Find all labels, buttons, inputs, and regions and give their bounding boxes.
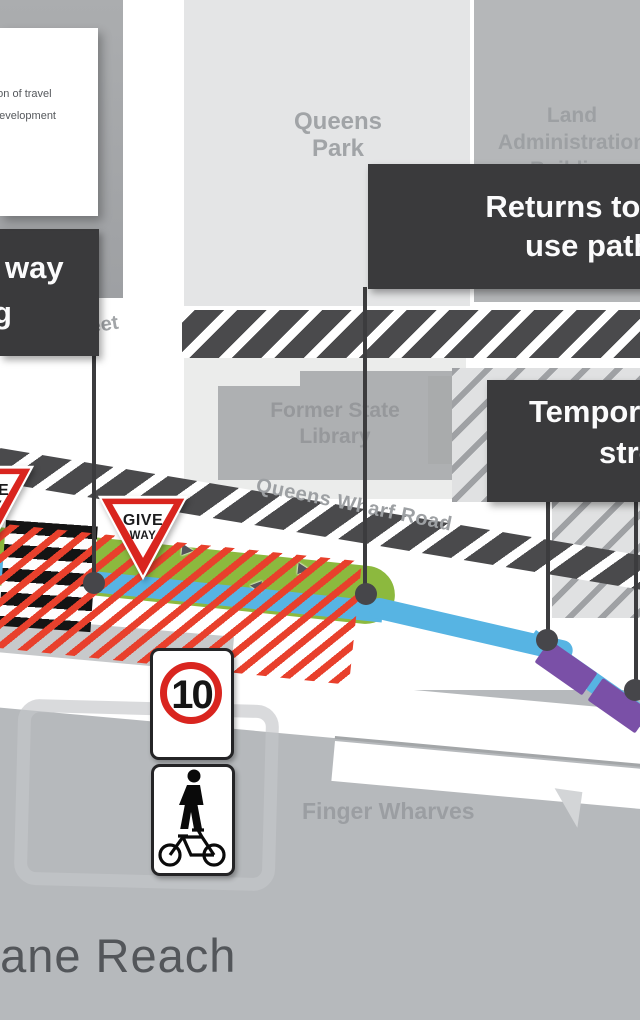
callout-leader-line <box>546 500 550 641</box>
callout-returns-to-shared-use: Returns to shared use pathway <box>368 164 640 289</box>
callout-pathway-crossing: way g <box>0 229 99 356</box>
legend-direction-of-travel: Direction of travel <box>0 88 52 100</box>
former-state-library-label: Former State Library <box>218 398 452 450</box>
shared-path-sign <box>151 764 235 876</box>
leader-anchor-dot <box>355 583 377 605</box>
finger-wharves-label: Finger Wharves <box>302 798 475 825</box>
map-canvas: Queens Park Land Administration Building… <box>0 0 640 1020</box>
reach-label: Brisbane Reach <box>0 928 236 983</box>
leader-anchor-dot <box>536 629 558 651</box>
map-legend-box: Direction of travel development <box>0 28 98 216</box>
bicycle-icon <box>160 830 224 865</box>
give-way-sign: GIVE WAY <box>96 494 190 582</box>
speed-limit-10-sign: 10 <box>150 648 234 760</box>
give-way-sign-partial: GIVE WAY <box>0 464 36 552</box>
leader-anchor-dot <box>624 679 640 701</box>
wharf-structure <box>14 699 280 892</box>
callout-leader-line <box>363 287 367 595</box>
closure-hatch-bar-north <box>182 310 640 358</box>
legend-development: development <box>0 110 56 122</box>
wharf-ramp-shape <box>550 788 583 828</box>
callout-leader-line <box>634 500 638 691</box>
callout-temporary-street: Temporary street <box>487 380 640 502</box>
pedestrian-icon <box>154 767 231 871</box>
queens-park-label: Queens Park <box>262 108 414 162</box>
